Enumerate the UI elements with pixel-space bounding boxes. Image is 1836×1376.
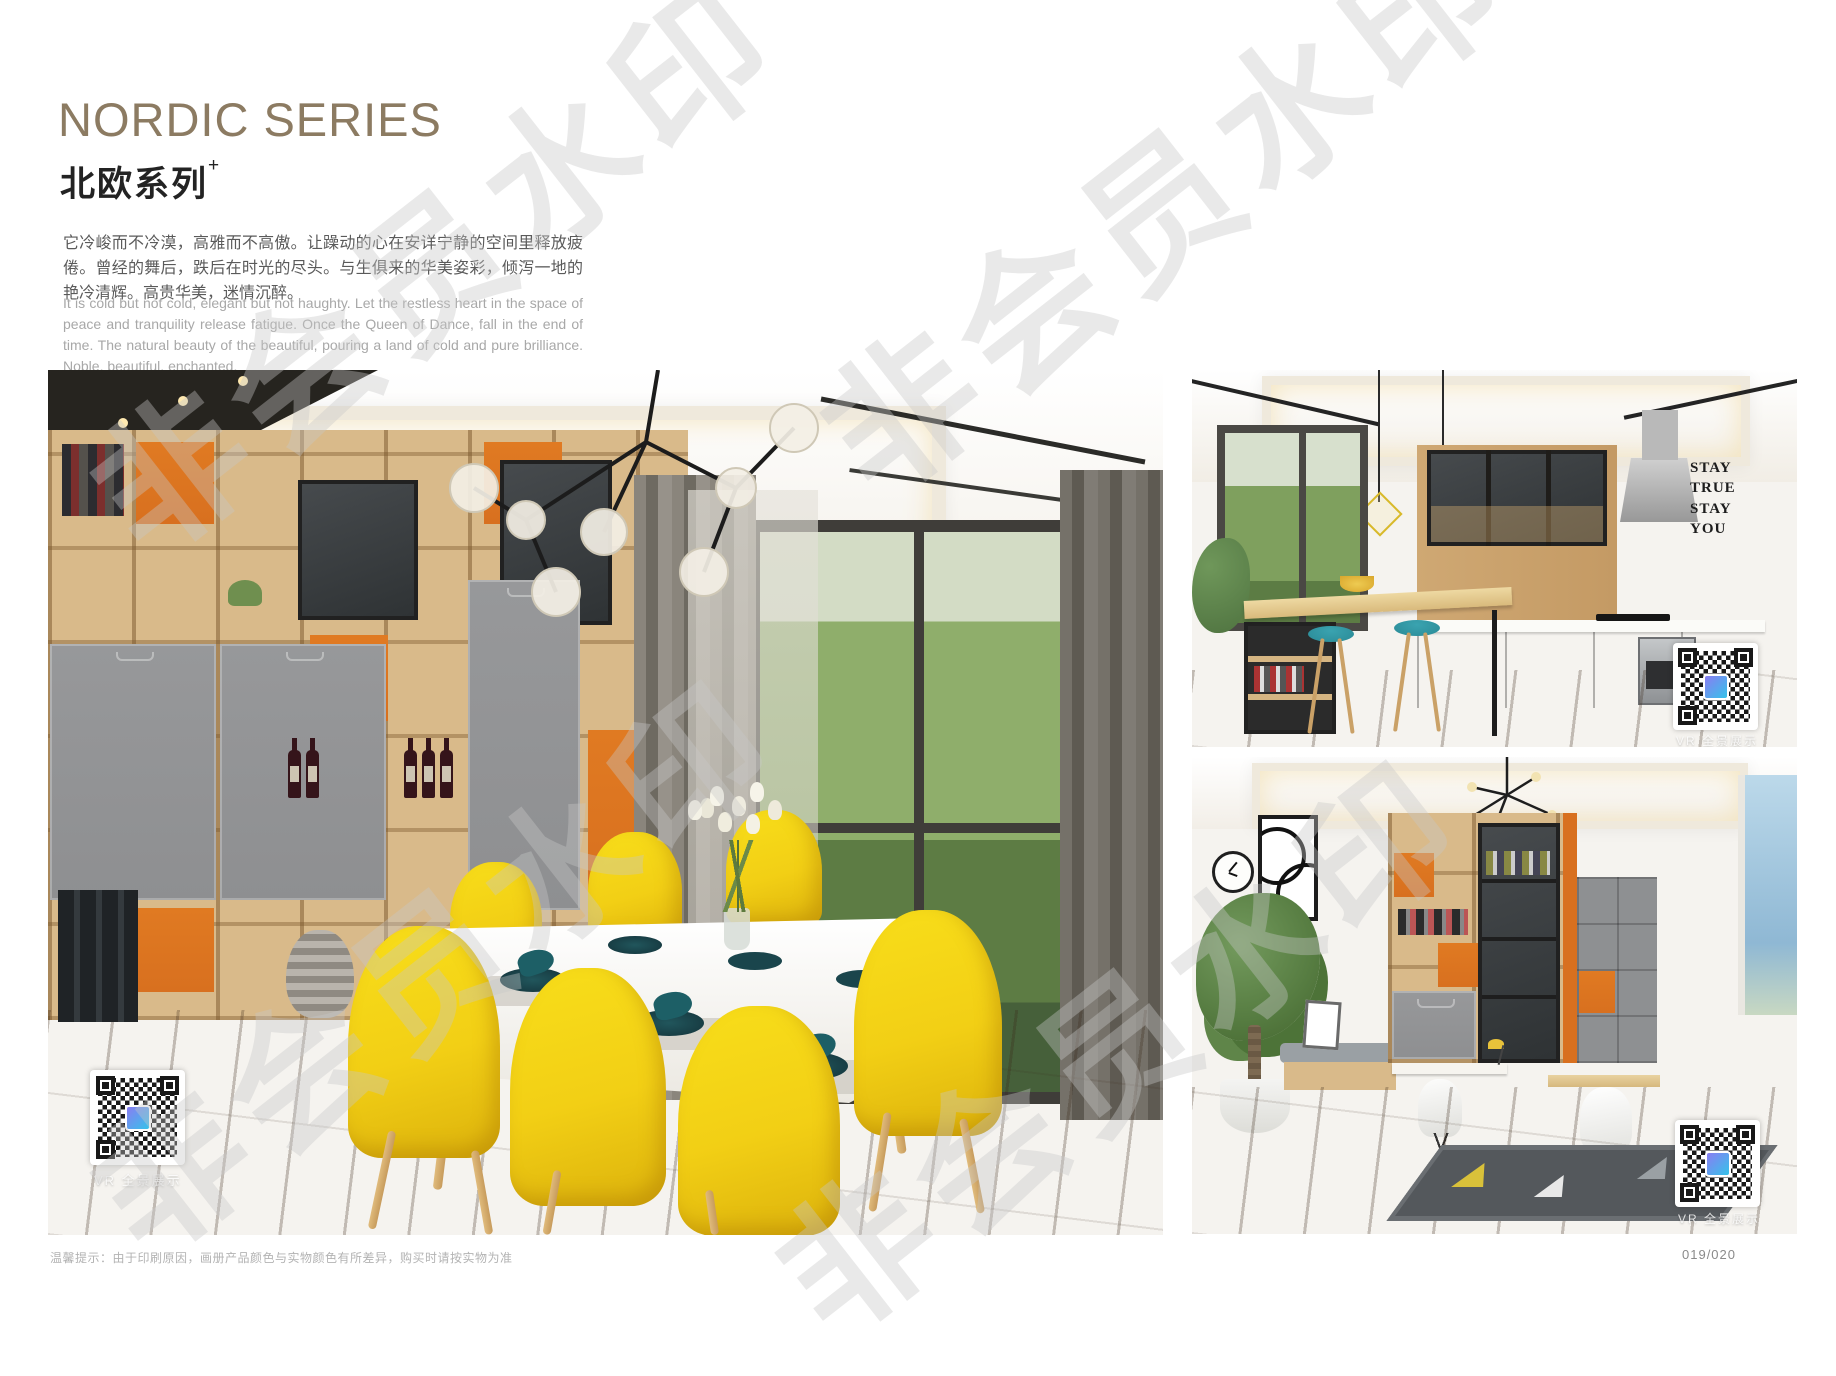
books — [1486, 851, 1550, 875]
qr-label-kitchen: VR 全景展示 — [1676, 732, 1758, 747]
plate-back-row — [608, 936, 662, 954]
wine-bottle — [440, 750, 453, 798]
qr-finder — [96, 1076, 115, 1095]
wine-bottle — [306, 750, 319, 798]
shelf-orange-cell — [136, 442, 214, 524]
qr-code-dining — [90, 1070, 185, 1165]
photo-kitchen: STAY TRUE STAY YOU VR 全景展示 — [1192, 370, 1797, 747]
wall-art-stay-true: STAY TRUE STAY YOU — [1690, 458, 1736, 539]
shelf-orange-cell — [1394, 853, 1434, 897]
books — [62, 444, 124, 516]
bench-base — [1284, 1062, 1396, 1090]
dining-chair-yellow — [348, 926, 500, 1158]
cooktop — [1596, 614, 1670, 621]
wall-art-line: YOU — [1690, 519, 1736, 539]
plant-foliage — [1196, 893, 1320, 1041]
desk-top — [1548, 1075, 1660, 1087]
countertop — [1417, 620, 1765, 632]
qr-finder — [1736, 1125, 1755, 1144]
qr-label-study: VR 全景展示 — [1678, 1210, 1760, 1227]
cabinet-door — [220, 644, 386, 900]
flower-vase — [724, 908, 750, 950]
cabinet-glow — [1431, 506, 1603, 542]
books — [1254, 666, 1304, 692]
photo-dining-room: VR 全景展示 — [48, 370, 1163, 1235]
shelf-orange-cell — [136, 908, 214, 992]
flower-stems — [712, 840, 764, 912]
qr-code-kitchen — [1673, 643, 1758, 730]
wine-bottle — [288, 750, 301, 798]
books-stack — [58, 890, 138, 1022]
pendant-cord — [1378, 370, 1380, 502]
bench-cushion — [1280, 1043, 1398, 1063]
qr-finder — [1734, 648, 1753, 667]
qr-finder — [160, 1076, 179, 1095]
qr-code-study — [1675, 1120, 1760, 1207]
spotlight — [118, 418, 128, 428]
vr-cube-icon — [1705, 1151, 1731, 1177]
clock-hand — [1228, 862, 1237, 872]
qr-finder — [1680, 1183, 1699, 1202]
vr-cube-icon — [1703, 674, 1729, 700]
shelf-orange-cell — [1579, 971, 1615, 1013]
plant-pot — [228, 580, 262, 606]
shelf-board — [1248, 694, 1332, 700]
shelf-orange-cell — [1438, 943, 1478, 987]
page-number: 019/020 — [1682, 1247, 1736, 1262]
bookcase-shelf — [1482, 879, 1556, 883]
range-hood — [1620, 458, 1698, 522]
window-mullion — [1299, 433, 1306, 623]
wine-bottle — [404, 750, 417, 798]
bar-table-leg — [1492, 610, 1497, 736]
bar-stool-teal — [1394, 620, 1440, 636]
qr-finder — [96, 1140, 115, 1159]
page-title: NORDIC SERIES — [58, 92, 442, 147]
wall-art-line: STAY — [1690, 499, 1736, 519]
qr-finder — [1678, 706, 1697, 725]
dining-chair-yellow — [510, 968, 666, 1206]
bar-bowl — [1340, 576, 1374, 592]
upper-glass-cabinet — [1427, 450, 1607, 546]
cube-storage — [1577, 877, 1657, 1063]
bar-stool-teal — [1308, 626, 1354, 642]
hood-chimney — [1642, 410, 1678, 460]
subtitle-plus: + — [208, 155, 221, 176]
chandelier — [398, 370, 838, 650]
cabinet-door — [50, 644, 216, 900]
desk-top — [1392, 1063, 1507, 1074]
vr-cube-icon — [125, 1105, 151, 1131]
intro-paragraph-en: It is cold but not cold, elegant but not… — [63, 293, 583, 377]
dining-chair-yellow — [854, 910, 1002, 1136]
clock-hand — [1228, 872, 1237, 877]
plant-trunk — [1248, 1025, 1261, 1087]
wall-clock — [1212, 851, 1254, 893]
orange-accent-column — [1563, 813, 1577, 1063]
leaning-frame — [1302, 1000, 1341, 1050]
flowers-white — [688, 800, 702, 820]
wall-art-line: STAY — [1690, 458, 1736, 478]
glass-bookcase — [1478, 823, 1560, 1063]
rug-triangle — [1451, 1163, 1500, 1187]
footer-disclaimer: 温馨提示：由于印刷原因，画册产品颜色与实物颜色有所差异，购买时请按实物为准 — [50, 1249, 513, 1266]
qr-label-dining: VR 全景展示 — [94, 1170, 182, 1189]
cabinet-door — [1392, 991, 1476, 1059]
ceramic-jar — [286, 930, 354, 1018]
qr-finder — [1678, 648, 1697, 667]
photo-study-room: VR 全景展示 — [1192, 757, 1797, 1234]
window-sky — [1738, 775, 1797, 1015]
wine-bottle — [422, 750, 435, 798]
rug-triangle — [1534, 1175, 1578, 1197]
books — [1398, 909, 1468, 935]
page-subtitle: 北欧系列+ — [60, 156, 221, 207]
dining-chair-yellow — [678, 1006, 840, 1235]
qr-finder — [1680, 1125, 1699, 1144]
wall-art-line: TRUE — [1690, 478, 1736, 498]
subtitle-text: 北欧系列 — [60, 165, 208, 204]
